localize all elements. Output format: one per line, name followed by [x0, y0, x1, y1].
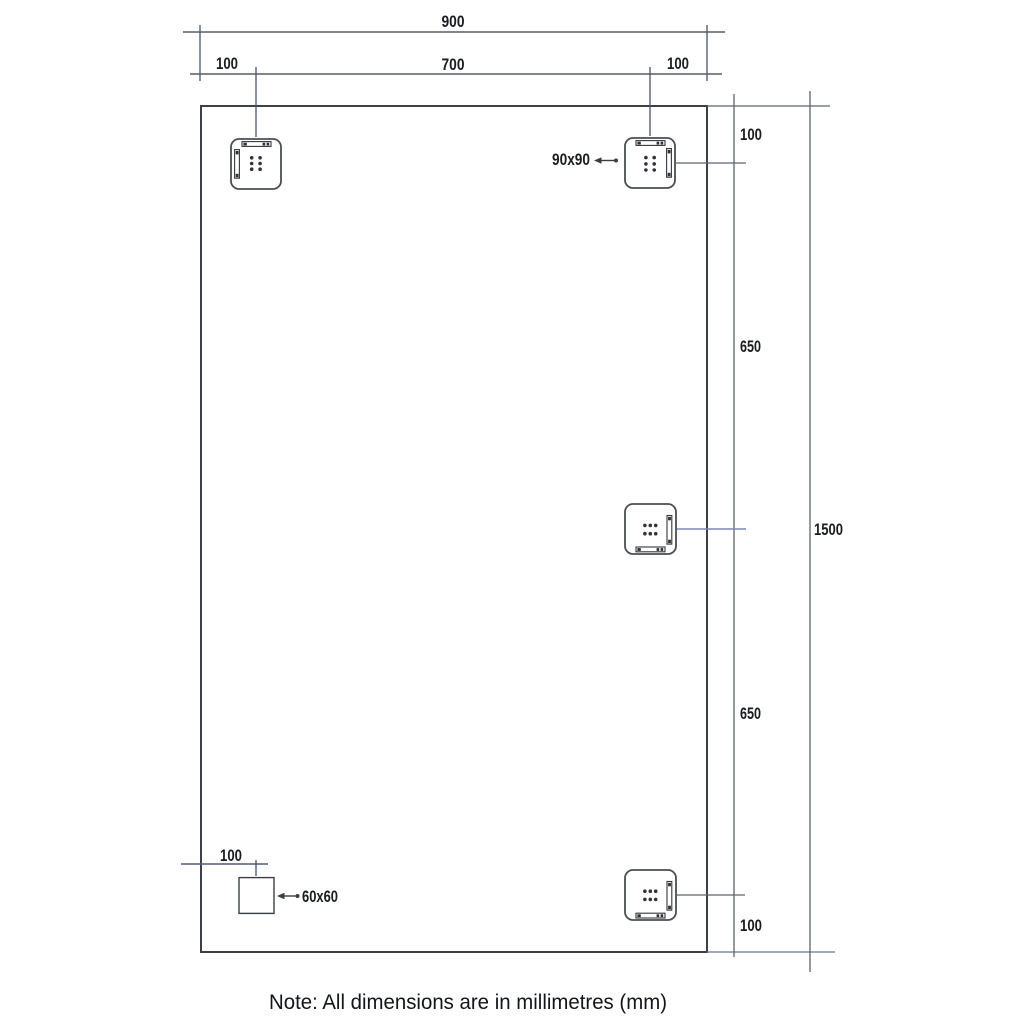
svg-text:700: 700: [442, 55, 465, 74]
svg-text:60x60: 60x60: [302, 887, 338, 906]
svg-text:100: 100: [216, 54, 238, 73]
svg-text:90x90: 90x90: [552, 150, 590, 169]
svg-text:650: 650: [740, 337, 761, 356]
svg-text:900: 900: [442, 12, 465, 31]
svg-text:100: 100: [667, 54, 689, 73]
svg-text:100: 100: [740, 916, 762, 935]
svg-text:100: 100: [220, 846, 242, 865]
svg-text:Note: All dimensions are in mi: Note: All dimensions are in millimetres …: [269, 991, 667, 1014]
svg-text:100: 100: [740, 125, 762, 144]
svg-text:650: 650: [740, 704, 761, 723]
svg-text:1500: 1500: [814, 520, 843, 539]
